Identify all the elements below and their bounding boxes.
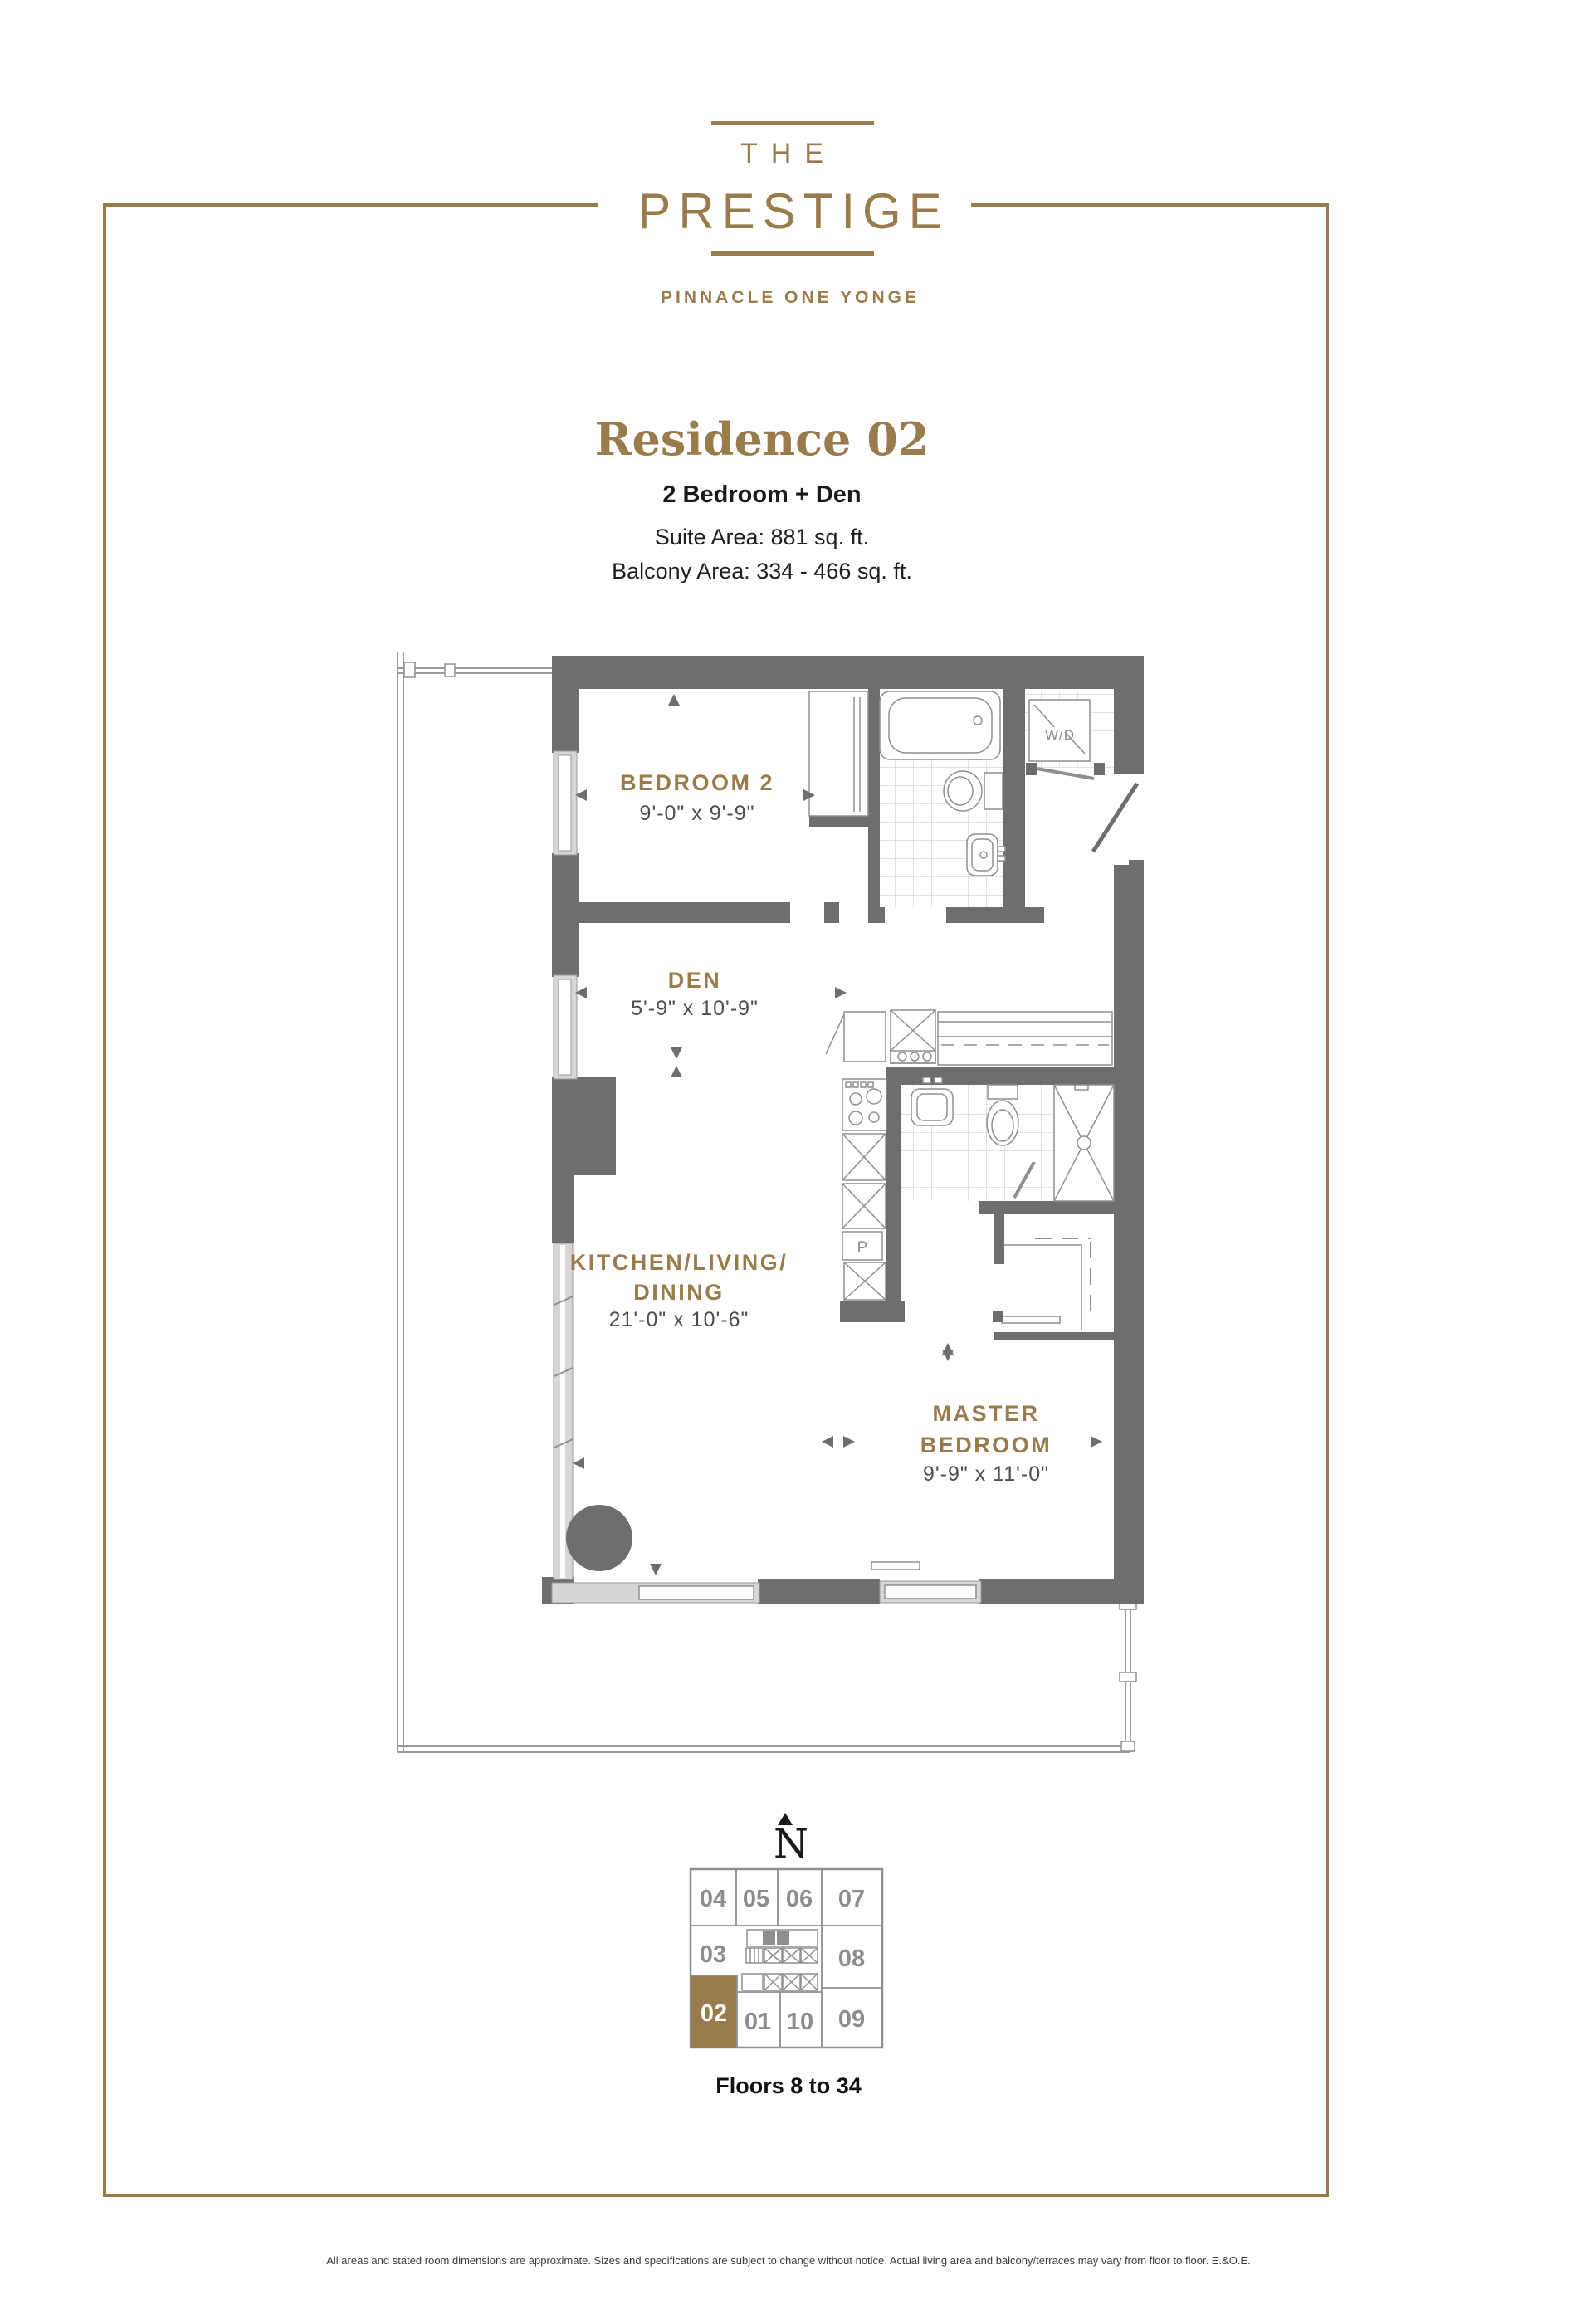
master-dims: 9'-9" x 11'-0" xyxy=(923,1462,1049,1486)
keyplan-unit-01: 01 xyxy=(745,2009,771,2035)
keyplan-unit-07: 07 xyxy=(838,1886,865,1912)
toilet-ensuite xyxy=(987,1085,1018,1145)
kitchen-dims: 21'-0" x 10'-6" xyxy=(609,1308,749,1331)
master-label-1: MASTER xyxy=(933,1401,1040,1426)
keyplan-unit-09: 09 xyxy=(838,2006,865,2033)
kitchen-label-2: DINING xyxy=(633,1280,725,1305)
bedroom2-label: BEDROOM 2 xyxy=(620,770,774,795)
keyplan-unit-02: 02 xyxy=(701,2000,727,2027)
counter xyxy=(938,1012,1112,1065)
upper-cabinet xyxy=(891,1010,935,1063)
master-door-leaf xyxy=(1002,1316,1060,1323)
kitchen-label-1: KITCHEN/LIVING/ xyxy=(570,1250,788,1275)
toilet-main xyxy=(944,771,1003,811)
keyplan-unit-03: 03 xyxy=(700,1941,726,1968)
dining-table xyxy=(566,1505,632,1571)
bathtub xyxy=(880,691,1000,759)
keyplan-unit-04: 04 xyxy=(700,1886,726,1912)
bedroom2-closet xyxy=(809,691,868,816)
north-letter: N xyxy=(774,1821,808,1867)
bathroom-main xyxy=(880,691,1005,907)
cooktop xyxy=(842,1079,886,1130)
laundry-closet: W/D xyxy=(1025,691,1114,779)
master-label-2: BEDROOM xyxy=(920,1433,1052,1457)
base-cabinets: P xyxy=(842,1134,886,1300)
keyplan: 04 05 06 07 03 08 02 01 10 09 xyxy=(691,1869,882,2048)
floorplan-page: THE PRESTIGE PINNACLE ONE YONGE Residenc… xyxy=(0,0,1577,2324)
master-closet xyxy=(993,1238,1091,1330)
bathroom-ensuite xyxy=(901,1077,1114,1201)
keyplan-unit-05: 05 xyxy=(743,1886,769,1912)
den-dims: 5'-9" x 10'-9" xyxy=(631,997,759,1020)
fridge xyxy=(844,1012,886,1062)
keyplan-unit-06: 06 xyxy=(786,1886,813,1912)
north-arrow: N xyxy=(774,1813,808,1867)
den-label: DEN xyxy=(668,968,722,993)
pantry-label: P xyxy=(857,1239,868,1257)
bedroom2-dims: 9'-0" x 9'-9" xyxy=(640,802,755,825)
keyplan-unit-08: 08 xyxy=(838,1946,865,1972)
entry-door-leaf xyxy=(1093,784,1137,852)
drawing-canvas: W/D xyxy=(0,0,1577,2324)
wd-label: W/D xyxy=(1045,727,1075,743)
shower xyxy=(1054,1085,1114,1201)
keyplan-unit-10: 10 xyxy=(787,2009,813,2035)
